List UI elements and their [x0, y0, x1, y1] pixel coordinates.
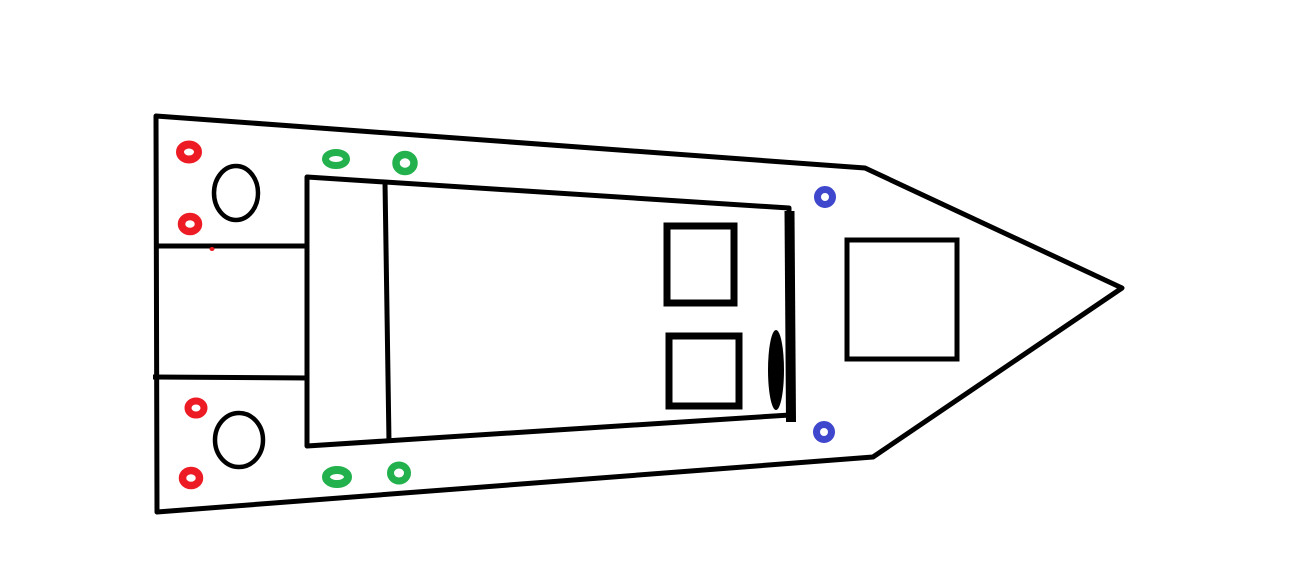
- hull-outline: [156, 116, 1122, 512]
- blue-marker-bow-bottom: [817, 425, 832, 440]
- bulkhead-lever-filled-oval: [768, 330, 784, 410]
- red-marker-stern-bottom-1: [188, 401, 204, 415]
- boat-plan-svg: [0, 0, 1316, 583]
- stern-circle-top: [214, 166, 258, 220]
- green-marker-starboard-1: [326, 470, 348, 484]
- green-marker-starboard-2: [391, 465, 408, 481]
- red-marker-stern-top-1: [180, 145, 198, 160]
- red-marker-stern-bottom-2: [183, 471, 200, 486]
- stern-circle-bottom: [215, 413, 263, 467]
- green-marker-port-2: [396, 155, 414, 172]
- stray-red-dot: [210, 247, 215, 251]
- blue-marker-bow-top: [818, 190, 833, 205]
- red-marker-stern-top-2: [182, 217, 199, 232]
- hatch-square-bottom: [669, 336, 739, 406]
- motorwell-bottom-line: [153, 377, 309, 378]
- hatch-square-top: [667, 226, 734, 303]
- drawing-canvas: [0, 0, 1316, 583]
- seat-divider-line: [385, 182, 389, 442]
- bow-hatch-square: [847, 240, 957, 359]
- cockpit-bulkhead-thick-line: [790, 211, 792, 422]
- green-marker-port-1: [326, 153, 347, 166]
